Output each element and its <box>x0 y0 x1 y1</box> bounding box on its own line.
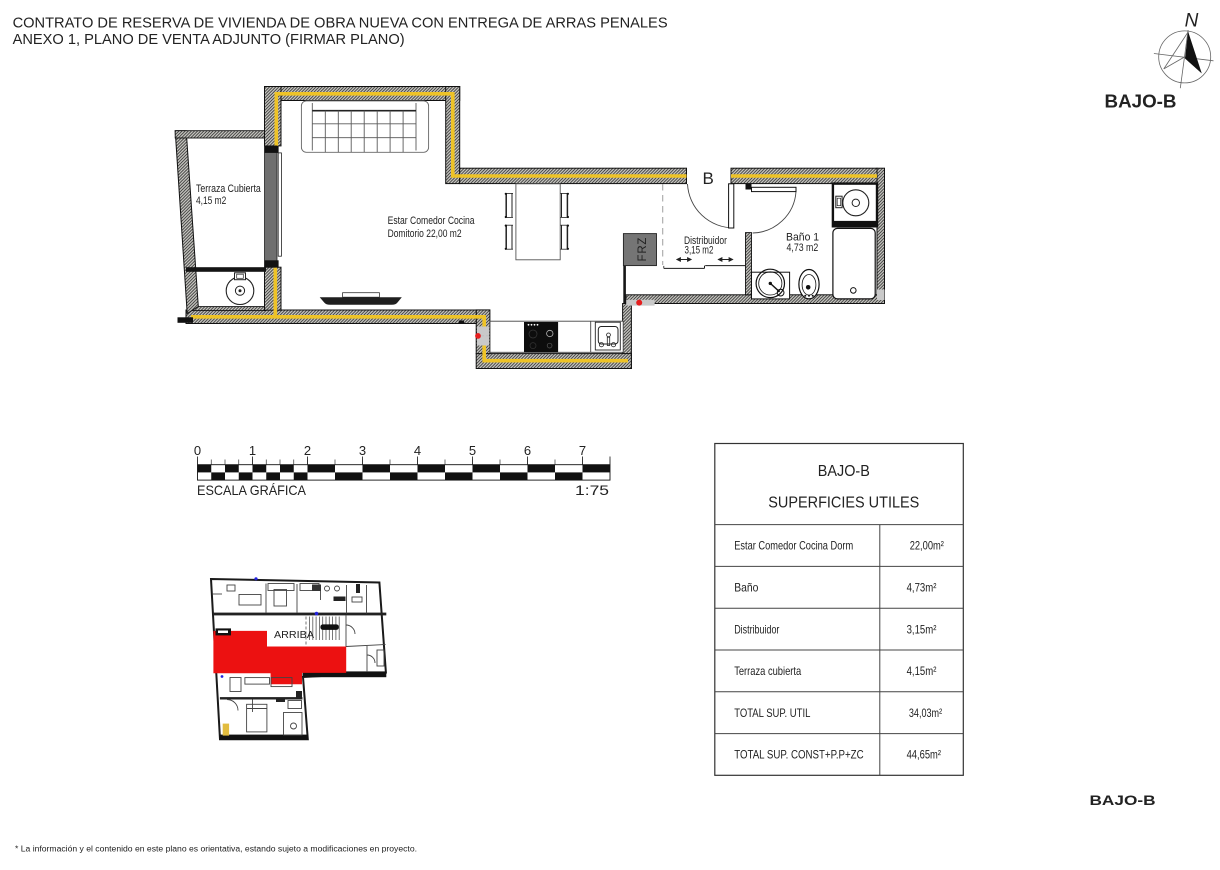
svg-text:3: 3 <box>359 443 366 458</box>
svg-text:ESCALA GRÁFICA: ESCALA GRÁFICA <box>197 482 307 498</box>
svg-text:TOTAL SUP. CONST+P.P+ZC: TOTAL SUP. CONST+P.P+ZC <box>734 748 864 762</box>
svg-text:4,15m²: 4,15m² <box>907 664 937 678</box>
svg-text:* La información y el contenid: * La información y el contenido en este … <box>15 845 417 854</box>
svg-text:6: 6 <box>524 443 531 458</box>
svg-text:44,65m²: 44,65m² <box>907 748 941 762</box>
svg-text:BAJO-B: BAJO-B <box>1105 91 1177 112</box>
svg-text:Terraza cubierta: Terraza cubierta <box>734 664 801 678</box>
svg-text:BAJO-B: BAJO-B <box>1090 792 1156 808</box>
svg-text:Estar Comedor Cocina: Estar Comedor Cocina <box>388 215 476 227</box>
svg-text:Terraza Cubierta: Terraza Cubierta <box>196 183 261 195</box>
svg-text:1: 1 <box>249 443 256 458</box>
svg-text:22,00m²: 22,00m² <box>910 539 944 553</box>
svg-text:3,15m²: 3,15m² <box>907 622 937 636</box>
svg-text:4,73 m2: 4,73 m2 <box>787 242 819 254</box>
svg-text:FRZ: FRZ <box>637 237 649 262</box>
svg-text:2: 2 <box>304 443 311 458</box>
svg-text:B: B <box>703 169 714 188</box>
svg-text:34,03m²: 34,03m² <box>909 706 942 720</box>
svg-text:Estar Comedor Cocina Dorm: Estar Comedor Cocina Dorm <box>734 539 853 553</box>
svg-text:4,73m²: 4,73m² <box>907 581 937 595</box>
svg-text:1:75: 1:75 <box>575 482 609 498</box>
svg-text:Baño: Baño <box>734 581 758 595</box>
svg-text:7: 7 <box>579 443 586 458</box>
svg-text:4: 4 <box>414 443 421 458</box>
svg-text:3,15 m2: 3,15 m2 <box>685 244 714 256</box>
svg-text:ARRIBA: ARRIBA <box>274 630 314 641</box>
svg-text:BAJO-B: BAJO-B <box>818 463 870 480</box>
svg-text:5: 5 <box>469 443 476 458</box>
svg-text:0: 0 <box>194 443 201 458</box>
svg-text:CONTRATO DE RESERVA DE VIVIEND: CONTRATO DE RESERVA DE VIVIENDA DE OBRA … <box>13 16 668 32</box>
svg-text:4,15 m2: 4,15 m2 <box>196 195 226 207</box>
svg-text:TOTAL SUP. UTIL: TOTAL SUP. UTIL <box>734 706 810 720</box>
svg-text:Domitorio 22,00 m2: Domitorio 22,00 m2 <box>388 228 462 240</box>
svg-text:N: N <box>1185 11 1199 32</box>
svg-text:Distribuidor: Distribuidor <box>734 622 779 636</box>
svg-text:SUPERFICIES UTILES: SUPERFICIES UTILES <box>768 495 919 512</box>
svg-text:ANEXO 1, PLANO DE VENTA ADJUNT: ANEXO 1, PLANO DE VENTA ADJUNTO (FIRMAR … <box>13 32 405 48</box>
